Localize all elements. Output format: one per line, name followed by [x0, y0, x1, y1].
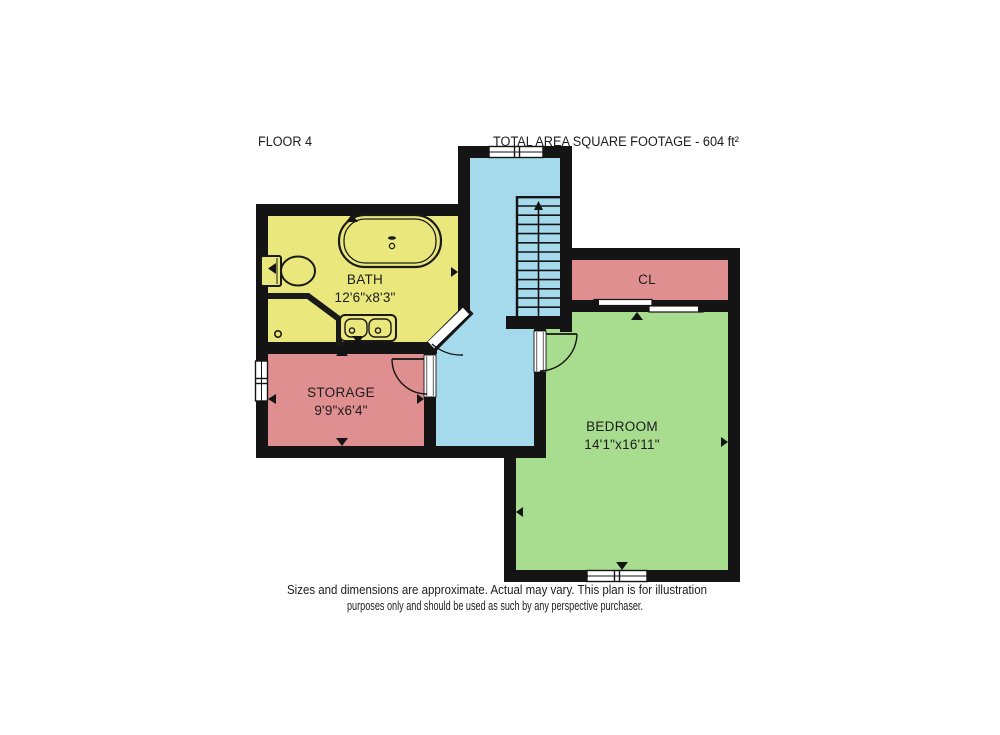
double-sink-vanity [340, 315, 396, 341]
toilet [261, 256, 315, 286]
bedroom-label: BEDROOM [586, 419, 658, 434]
bedroom-dimensions: 14'1"x16'11" [584, 437, 659, 452]
wall-segment [458, 146, 470, 314]
storage-room-label: STORAGE [307, 385, 375, 400]
wall-segment [728, 248, 740, 582]
disclaimer-line-1: Sizes and dimensions are approximate. Ac… [287, 583, 707, 597]
total-area-label: TOTAL AREA SQUARE FOOTAGE - 604 ft² [493, 134, 739, 149]
wall-segment [256, 342, 437, 354]
wall-segment [560, 248, 740, 260]
bath-room-label: BATH [347, 272, 383, 287]
bath-room-dimensions: 12'6"x8'3" [334, 290, 395, 305]
wall-segment [506, 316, 568, 329]
closet-label: CL [638, 272, 656, 287]
bedroom-window [587, 571, 647, 582]
floor-plan-canvas: FLOOR 4 TOTAL AREA SQUARE FOOTAGE - 604 … [0, 0, 1000, 735]
wall-segment [504, 446, 516, 582]
floor-plan-page: FLOOR 4 TOTAL AREA SQUARE FOOTAGE - 604 … [0, 0, 1000, 735]
wall-segment [256, 446, 546, 458]
storage-window [256, 361, 268, 401]
disclaimer-line-2: purposes only and should be used as such… [347, 599, 643, 613]
hallway-upper-area [462, 152, 562, 322]
floor-label: FLOOR 4 [258, 134, 312, 149]
wall-segment [256, 204, 268, 458]
storage-room-dimensions: 9'9"x6'4" [314, 403, 367, 418]
tub-faucet-icon [388, 236, 396, 240]
